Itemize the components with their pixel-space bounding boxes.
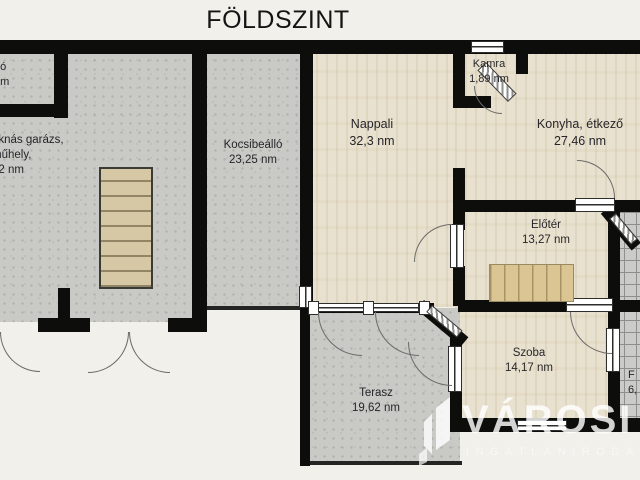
room-area: 32,3 nm: [312, 133, 432, 150]
room-name: Kamra: [454, 57, 524, 72]
room-nappali-floor: [306, 47, 458, 307]
wall: [0, 104, 68, 117]
watermark-subtitle: INGATLANIRODA: [466, 446, 640, 458]
room-label-furdo: F 6,: [628, 368, 640, 397]
wall: [0, 40, 640, 54]
door-frame: [575, 198, 615, 212]
door-arc: [129, 332, 170, 373]
room-area: 52 nm: [0, 163, 122, 178]
room-label-kamra: Kamra 1,89 nm: [454, 57, 524, 86]
door-lintel: [373, 303, 419, 312]
wall: [463, 200, 577, 212]
door-arc: [0, 332, 40, 372]
page-title: FÖLDSZINT: [68, 6, 488, 35]
wall: [58, 288, 70, 332]
window-symbol: [471, 41, 504, 53]
room-name: Szoba: [469, 346, 589, 361]
room-label-top-left: dó nm: [0, 60, 34, 89]
room-area: nm: [0, 75, 34, 90]
room-name: Nappali: [312, 116, 432, 133]
door-lintel: [318, 303, 364, 312]
room-label-terasz: Terasz 19,62 nm: [316, 386, 436, 416]
room-area: 27,46 nm: [510, 133, 640, 150]
terasz-bottom-edge: [302, 461, 462, 465]
room-kocsibeallo-floor: [202, 47, 304, 309]
room-label-konyha: Konyha, étkező 27,46 nm: [510, 116, 640, 149]
wall: [168, 318, 207, 332]
window-symbol: [517, 420, 567, 431]
room-area: 14,17 nm: [469, 361, 589, 376]
room-name: Konyha, étkező: [510, 116, 640, 133]
garage-service-pit: [99, 167, 153, 289]
room-area: 13,27 nm: [486, 233, 606, 248]
carport-open-edge: [206, 306, 304, 310]
room-name: F: [628, 368, 640, 383]
wall: [613, 200, 640, 212]
room-name: Kocsibeálló: [203, 138, 303, 153]
room-name: Terasz: [316, 386, 436, 401]
room-name: aknás garázs,: [0, 133, 122, 148]
room-label-eloter: Előtér 13,27 nm: [486, 218, 606, 248]
wall: [192, 40, 207, 332]
room-label-nappali: Nappali 32,3 nm: [312, 116, 432, 149]
door-frame: [450, 224, 464, 268]
door-arc: [88, 332, 129, 373]
wall: [300, 306, 310, 466]
room-area: 6,: [628, 383, 640, 398]
wall: [453, 168, 465, 230]
room-name: dó: [0, 60, 34, 75]
staircase: [489, 264, 574, 302]
room-name: Előtér: [486, 218, 606, 233]
room-area: 1,89 nm: [454, 72, 524, 87]
wall: [300, 40, 313, 308]
room-label-szoba: Szoba 14,17 nm: [469, 346, 589, 376]
room-name: műhely,: [0, 148, 122, 163]
floorplan-canvas: FÖLDSZINT: [0, 0, 640, 480]
room-area: 19,62 nm: [316, 401, 436, 416]
room-area: 23,25 nm: [203, 153, 303, 168]
room-label-kocsibeallo: Kocsibeálló 23,25 nm: [203, 138, 303, 168]
room-label-garage: aknás garázs, műhely, 52 nm: [0, 133, 122, 179]
